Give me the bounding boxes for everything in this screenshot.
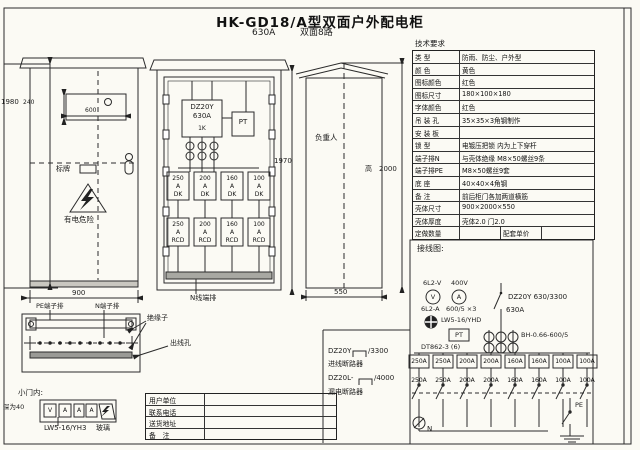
main-breaker-tag: 1K [182, 126, 222, 133]
breaker-unit: A [167, 229, 189, 236]
row-label: 图标颜色 [413, 76, 460, 88]
order-qty-label: 定做数量 [413, 227, 460, 239]
table-row: 锁 型电镀压把锁 内为上下穿杆 [413, 138, 594, 151]
breaker-type: RCD [194, 237, 216, 244]
table-row: 联系电话 [146, 405, 336, 417]
breaker-type: DK [248, 191, 270, 198]
row-value: 40×40×4角钢 [460, 177, 594, 189]
legend-model-2: DZ20L- [328, 375, 353, 383]
voltmeter-symbol: V [427, 294, 439, 301]
breaker-rating: 160 [221, 175, 243, 182]
busbar-bolts [38, 341, 122, 345]
breaker-rating: 100 [248, 175, 270, 182]
breaker-type: RCD [248, 237, 270, 244]
fuse-rating: 100A [553, 358, 573, 365]
row-label: 端子排N [413, 152, 460, 164]
breaker-rating: 200 [194, 221, 216, 228]
row-label: 类 型 [413, 51, 460, 63]
lower-busbar [30, 352, 132, 358]
main-current-label: 630A [506, 307, 524, 315]
breaker-type: DK [167, 191, 189, 198]
row-value: M8×50螺丝9套 [460, 164, 594, 176]
table-row: 安 装 板 [413, 126, 594, 139]
row-value [205, 394, 336, 405]
n-bus-label: N线端排 [190, 295, 216, 303]
n-bus-bar [166, 272, 272, 279]
neutral-label: N [427, 426, 432, 434]
row-value: 前后柜门各加两道横筋 [460, 190, 594, 202]
fuse-rating: 250A [433, 358, 453, 365]
pe-busbar [30, 320, 132, 328]
row-value [205, 406, 336, 417]
row-label: 壳体尺寸 [413, 202, 460, 214]
row-value: 180×100×180 [460, 89, 594, 101]
dim-2000-label: 2000 [379, 166, 397, 174]
breaker-symbol-1 [353, 351, 366, 357]
breaker-unit: A [221, 183, 243, 190]
table-row: 吊 装 孔35×35×3角钢制作 [413, 113, 594, 126]
switch-rating: 100A [577, 377, 597, 384]
breaker-symbol-2 [359, 379, 372, 385]
row-label: 颜 色 [413, 64, 460, 76]
breaker-rating: 100 [248, 221, 270, 228]
row-label: 端子排PE [413, 164, 460, 176]
dim-1980-label: 1980 [1, 99, 19, 107]
row-value: 电镀压把锁 内为上下穿杆 [460, 139, 594, 151]
row-label: 备 注 [413, 190, 460, 202]
breaker-unit: A [194, 183, 216, 190]
fuse-rating: 250A [409, 358, 429, 365]
tech-requirements-table: 类 型防雨、防尘、户外型 颜 色黄色 图标颜色红色 图标尺寸180×100×18… [412, 50, 595, 240]
energy-meter-model: DT862-3 (6) [421, 344, 460, 351]
row-value: 35×35×3角钢制作 [460, 114, 594, 126]
switch-rating: 200A [457, 377, 477, 384]
fuse-rating: 200A [457, 358, 477, 365]
table-row: 颜 色黄色 [413, 63, 594, 76]
side-center-label: 负重人 [315, 134, 338, 142]
dim-2000-prefix: 高 [365, 166, 372, 174]
switch-rating: 250A [433, 377, 453, 384]
legend-model-1: DZ20Y [328, 348, 351, 356]
legend-suffix-1: /3300 [368, 348, 388, 356]
main-breaker-model: DZ20Y [182, 104, 222, 112]
table-row: 端子排PEM8×50螺丝9套 [413, 163, 594, 176]
unit-price-value [542, 227, 594, 239]
row-label: 底 座 [413, 177, 460, 189]
dim-900-label: 900 [72, 290, 85, 298]
table-row: 字体颜色红色 [413, 100, 594, 113]
warning-label: 有电危险 [64, 216, 94, 224]
fuse-rating: 100A [577, 358, 597, 365]
nameplate-label: 标牌 [56, 166, 70, 174]
front-base [30, 281, 138, 287]
row-value [205, 429, 336, 440]
tech-table-title: 技术要求 [415, 40, 445, 48]
dim-240-label: 240 [23, 100, 34, 107]
fuse-rating: 160A [529, 358, 549, 365]
table-footer-row: 定做数量配套单价 [413, 226, 594, 239]
breaker-unit: A [221, 229, 243, 236]
legend-name-1: 进线断路器 [328, 361, 363, 369]
row-value: 与壳体绝缘 M8×50螺丝9条 [460, 152, 594, 164]
table-row: 备 注 [146, 428, 336, 440]
legend-suffix-2: /4000 [374, 375, 394, 383]
n-terminal-label: N端子排 [95, 303, 119, 310]
breaker-rating: 250 [167, 175, 189, 182]
subtitle-current: 630A [252, 29, 275, 39]
switch-rating: 160A [505, 377, 525, 384]
switch-rating: 100A [553, 377, 573, 384]
front-roof [20, 58, 146, 68]
drawing-sheet: HK-GD18/A型双面户外配电柜 630A 双面8路 1980 240 600… [0, 0, 640, 450]
voltmeter-model: 6L2-V [423, 280, 441, 287]
main-breaker-rating: 630A [182, 113, 222, 121]
breaker-unit: A [167, 183, 189, 190]
table-row: 端子排N与壳体绝缘 M8×50螺丝9条 [413, 151, 594, 164]
ammeter-model: 6L2-A [421, 306, 440, 313]
side-roof-bottom [299, 68, 385, 78]
table-row: 备 注前后柜门各加两道横筋 [413, 189, 594, 202]
row-label: 壳体厚度 [413, 215, 460, 227]
fuse-rating: 160A [505, 358, 525, 365]
dim-1970-label: 1970 [274, 158, 292, 166]
row-label: 用户单位 [146, 394, 205, 405]
dim-600-label: 600 [85, 108, 96, 115]
ground-icon [560, 436, 584, 442]
meter-window-a3: A [86, 407, 97, 414]
front-hole [105, 99, 112, 106]
table-row: 类 型防雨、防尘、户外型 [413, 51, 594, 63]
switch-rating: 160A [529, 377, 549, 384]
front-lock-top [126, 154, 133, 161]
row-label: 联系电话 [146, 406, 205, 417]
dim-550-label: 550 [334, 289, 347, 297]
unit-price-label: 配套单价 [501, 227, 542, 239]
breaker-type: DK [194, 191, 216, 198]
lightning-icon-small [101, 406, 110, 417]
main-breaker-spec: DZ20Y 630/3300 [508, 294, 567, 302]
meter-window-a2: A [74, 407, 84, 414]
door-switch-model: LW5-16/YH3 [44, 425, 86, 433]
fuse-rating: 200A [481, 358, 501, 365]
breaker-unit: A [248, 183, 270, 190]
row-label: 吊 装 孔 [413, 114, 460, 126]
row-value: 红色 [460, 76, 594, 88]
subtitle-type: 双面8路 [300, 29, 333, 39]
row-value: 900×2000×550 [460, 202, 594, 214]
voltmeter-rating: 400V [451, 280, 468, 287]
row-label: 锁 型 [413, 139, 460, 151]
switch-rating: 200A [481, 377, 501, 384]
switch-rating: 250A [409, 377, 429, 384]
breaker-type: DK [221, 191, 243, 198]
breaker-rating: 200 [194, 175, 216, 182]
table-row: 用户单位 [146, 394, 336, 405]
meter-window-a1: A [59, 407, 71, 414]
front-nameplate-rect [80, 165, 96, 173]
row-value: 防雨、防尘、户外型 [460, 51, 594, 63]
pt-symbol-label: PT [449, 332, 469, 339]
inner-roof [150, 60, 289, 70]
ammeter-symbol: A [453, 294, 465, 301]
row-value: 红色 [460, 101, 594, 113]
breaker-rating: 160 [221, 221, 243, 228]
table-row: 壳体厚度壳体2.0 门2.0 [413, 214, 594, 227]
pt-label: PT [232, 119, 254, 127]
table-row: 图标尺寸180×100×180 [413, 88, 594, 101]
breaker-unit: A [194, 229, 216, 236]
insulator-label: 绝缘子 [147, 315, 168, 323]
table-row: 送货地址 [146, 416, 336, 428]
pe-terminal-label: PE端子排 [36, 303, 64, 310]
order-info-table: 用户单位 联系电话 送货地址 备 注 [145, 393, 337, 440]
lightning-icon [80, 189, 94, 210]
breaker-rating: 250 [167, 221, 189, 228]
row-value: 黄色 [460, 64, 594, 76]
table-row: 图标颜色红色 [413, 75, 594, 88]
wiring-caption: 接线图: [417, 245, 444, 254]
row-label: 送货地址 [146, 417, 205, 428]
row-label: 字体颜色 [413, 101, 460, 113]
row-value [460, 127, 594, 139]
row-label: 安 装 板 [413, 127, 460, 139]
breaker-unit: A [248, 229, 270, 236]
front-body [30, 68, 138, 286]
selector-model: LW5-16/YHD [441, 317, 481, 324]
row-label: 图标尺寸 [413, 89, 460, 101]
door-glass-label: 玻璃 [96, 425, 110, 433]
table-row: 底 座40×40×4角钢 [413, 176, 594, 189]
ammeter-ratio: 600/5 ×3 [446, 306, 476, 313]
row-label: 备 注 [146, 429, 205, 440]
ct-model-label: BH-0.66-600/5 [521, 332, 568, 339]
pe-label: PE [575, 402, 583, 409]
order-qty-value [460, 227, 501, 239]
table-row: 壳体尺寸900×2000×550 [413, 201, 594, 214]
meter-window-v: V [44, 407, 56, 414]
door-detail-caption: 小门内: [18, 389, 43, 397]
breaker-type: RCD [221, 237, 243, 244]
outlet-hole-label: 出线孔 [170, 340, 191, 348]
row-value: 壳体2.0 门2.0 [460, 215, 594, 227]
breaker-type: RCD [167, 237, 189, 244]
row-value [205, 417, 336, 428]
door-depth-note: 深为40 [3, 404, 24, 411]
